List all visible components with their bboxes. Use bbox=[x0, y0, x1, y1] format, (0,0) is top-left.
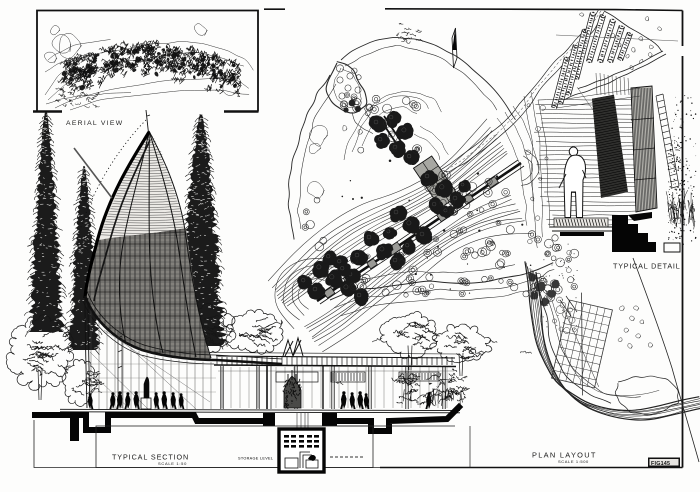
svg-text:FIG145: FIG145 bbox=[651, 461, 670, 467]
svg-text:SCALE 1:50: SCALE 1:50 bbox=[158, 461, 187, 466]
svg-text:STORAGE LEVEL: STORAGE LEVEL bbox=[238, 457, 273, 461]
svg-text:SCALE 1:500: SCALE 1:500 bbox=[558, 459, 589, 464]
svg-text:TYPICAL DETAIL: TYPICAL DETAIL bbox=[613, 262, 681, 271]
svg-text:AERIAL VIEW: AERIAL VIEW bbox=[66, 120, 123, 127]
